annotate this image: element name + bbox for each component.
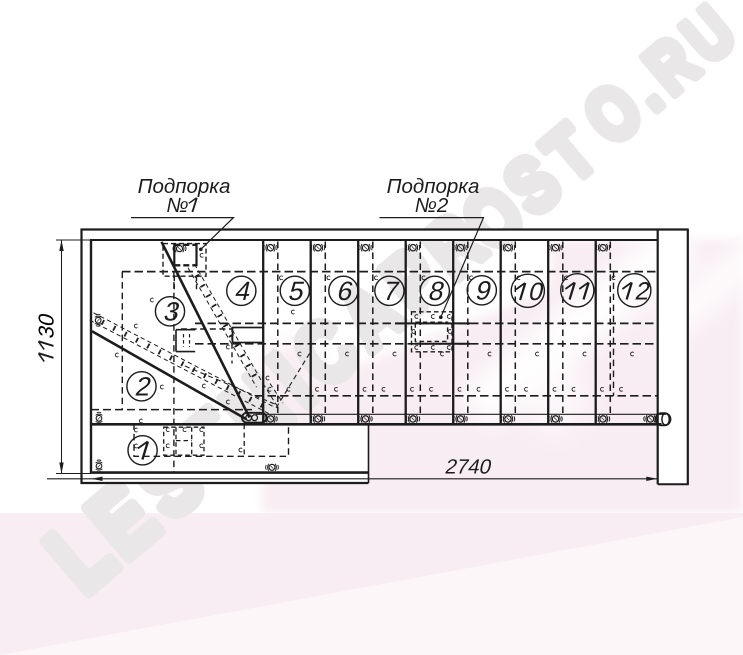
svg-text:№: № (166, 194, 188, 217)
svg-text:2740: 2740 (443, 456, 494, 479)
svg-text:№2: №2 (415, 194, 449, 217)
